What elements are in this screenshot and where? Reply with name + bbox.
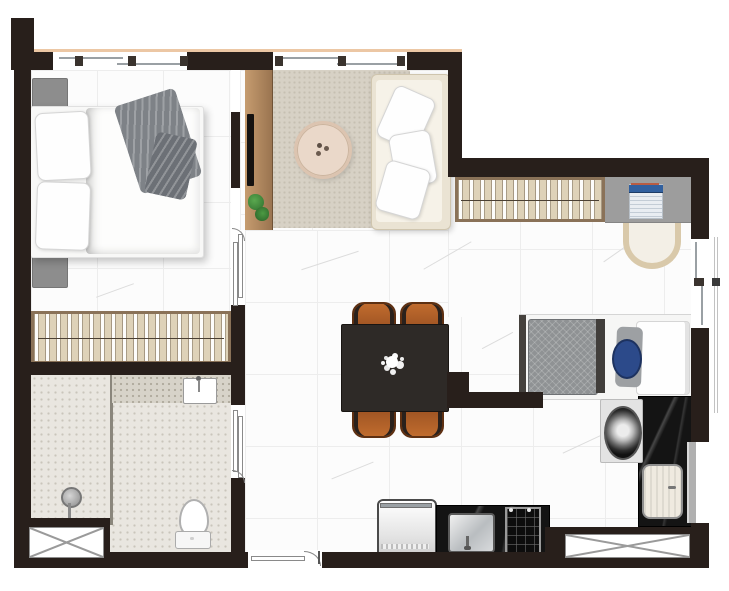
- wall-closet-bathroom-band: [31, 362, 231, 375]
- wall-bathroom-right-lower: [231, 478, 245, 568]
- window-mullion: [397, 56, 405, 66]
- window-mullion: [128, 56, 136, 66]
- window-sash: [59, 57, 123, 59]
- single-bed-footboard: [519, 315, 526, 397]
- entry-door-leaf: [251, 556, 305, 561]
- bedroom-door-leaf: [238, 234, 243, 298]
- window-sash: [701, 281, 703, 325]
- window-mullion: [338, 56, 346, 66]
- vanity-sink: [183, 378, 217, 404]
- wall-right-wing-top: [448, 158, 709, 177]
- bathroom-door-swing: [232, 470, 245, 483]
- bathroom-door-leaf: [238, 416, 243, 478]
- wall-under-single-bed-notch: [447, 372, 469, 396]
- bedroom-tv-niche-bar: [231, 112, 240, 188]
- single-bed-mattress: [528, 319, 598, 395]
- wall-right-b: [691, 328, 709, 442]
- wardrobe-rack-2: [455, 177, 605, 222]
- exterior-pipe-line: [717, 237, 718, 413]
- laundry-glass-door: [687, 442, 696, 523]
- entry-door-jamb: [318, 551, 320, 564]
- refrigerator-vents: [381, 544, 429, 549]
- exterior-pipe-line: [714, 237, 715, 413]
- cooktop-knobs: [509, 508, 513, 512]
- dining-table: [341, 324, 449, 412]
- flower-centerpiece: [386, 356, 398, 368]
- window-mullion: [275, 56, 283, 66]
- shower-head: [61, 487, 82, 508]
- washing-machine-drum: [604, 406, 642, 460]
- laundry-faucet: [668, 486, 676, 489]
- kitchen-sink: [448, 513, 495, 553]
- window-sash: [117, 63, 181, 65]
- floor-plan: [0, 0, 729, 591]
- exterior-pipe-joint: [712, 278, 720, 286]
- wall-right-a: [691, 177, 709, 239]
- vanity-faucet-stem: [198, 380, 200, 392]
- wall-top-segment-1: [187, 52, 273, 70]
- laundry-tub-sink: [642, 464, 683, 519]
- window-mullion: [75, 56, 83, 66]
- round-coffee-table: [294, 121, 352, 179]
- single-bed-pillow: [636, 321, 690, 395]
- window-sash: [279, 57, 341, 59]
- blue-accent-pillow: [612, 339, 642, 379]
- tv-panel: [247, 114, 254, 186]
- bed-pillow: [35, 181, 91, 251]
- window-mullion: [694, 278, 704, 286]
- toilet-button: [190, 537, 194, 540]
- service-shaft-bottom-right: [565, 534, 690, 558]
- wall-top-step: [31, 52, 53, 70]
- window-sash: [337, 63, 401, 65]
- bed-pillow: [34, 111, 91, 182]
- wall-bottom-middle: [322, 552, 552, 568]
- refrigerator-handle: [380, 503, 432, 508]
- wall-left: [14, 70, 31, 568]
- office-window: [691, 239, 709, 328]
- kitchen-faucet-base: [464, 546, 471, 550]
- potted-plant-leaf: [255, 207, 269, 221]
- cooktop: [505, 507, 541, 556]
- living-room-window: [273, 52, 407, 70]
- toilet-tank: [175, 531, 211, 549]
- wall-bathroom-right-upper: [231, 305, 245, 405]
- wardrobe-rack-1: [31, 311, 231, 364]
- service-shaft-bottom-left: [29, 527, 104, 558]
- coffee-table-cups: [317, 143, 322, 148]
- bedroom-window: [53, 52, 187, 70]
- laptop-screen-bar: [629, 185, 663, 193]
- single-bed-frame-gap: [596, 319, 605, 393]
- window-mullion: [180, 56, 188, 66]
